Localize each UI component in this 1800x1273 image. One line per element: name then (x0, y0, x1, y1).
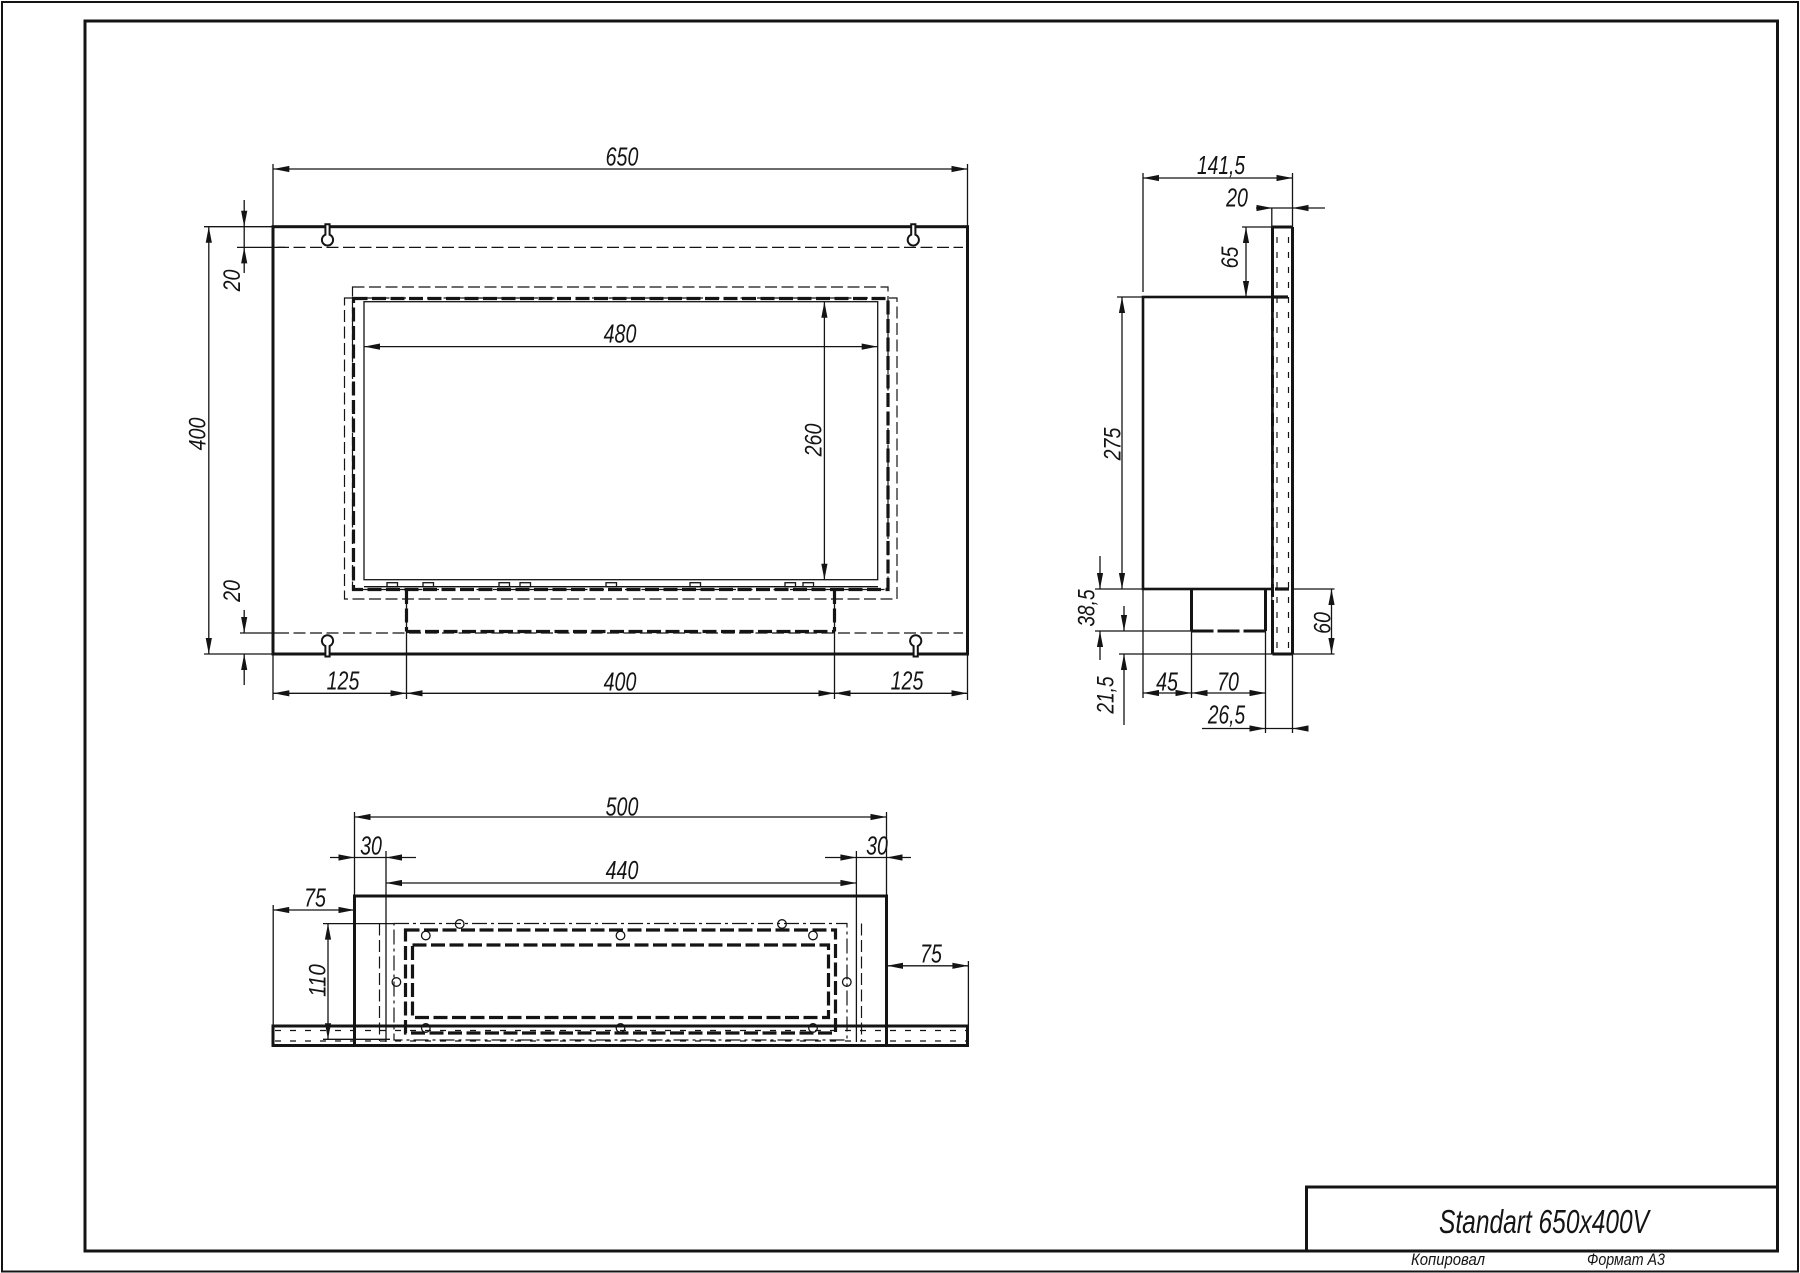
svg-text:110: 110 (305, 964, 332, 997)
svg-text:38,5: 38,5 (1074, 589, 1101, 627)
svg-text:20: 20 (219, 269, 246, 292)
svg-text:260: 260 (801, 423, 828, 457)
svg-text:75: 75 (920, 938, 942, 968)
svg-text:20: 20 (1225, 182, 1248, 212)
svg-text:650: 650 (606, 141, 639, 171)
svg-text:26,5: 26,5 (1207, 699, 1245, 729)
svg-text:400: 400 (604, 666, 637, 696)
svg-text:480: 480 (604, 318, 637, 348)
svg-text:21,5: 21,5 (1093, 676, 1120, 715)
svg-text:60: 60 (1310, 612, 1337, 634)
svg-text:65: 65 (1217, 246, 1244, 268)
svg-text:30: 30 (360, 830, 382, 860)
svg-text:Standart 650x400V: Standart 650x400V (1439, 1203, 1651, 1240)
svg-text:70: 70 (1217, 666, 1239, 696)
svg-text:500: 500 (606, 791, 639, 821)
svg-text:20: 20 (219, 580, 246, 603)
svg-text:Копировал: Копировал (1411, 1250, 1485, 1269)
svg-text:440: 440 (606, 855, 639, 885)
svg-text:Формат А3: Формат А3 (1587, 1250, 1665, 1269)
svg-text:75: 75 (304, 882, 326, 912)
svg-text:125: 125 (327, 665, 360, 695)
svg-text:275: 275 (1100, 427, 1127, 461)
svg-text:400: 400 (185, 417, 212, 450)
svg-text:125: 125 (891, 665, 924, 695)
svg-text:45: 45 (1156, 666, 1178, 696)
svg-text:141,5: 141,5 (1197, 150, 1245, 180)
svg-text:30: 30 (866, 830, 888, 860)
